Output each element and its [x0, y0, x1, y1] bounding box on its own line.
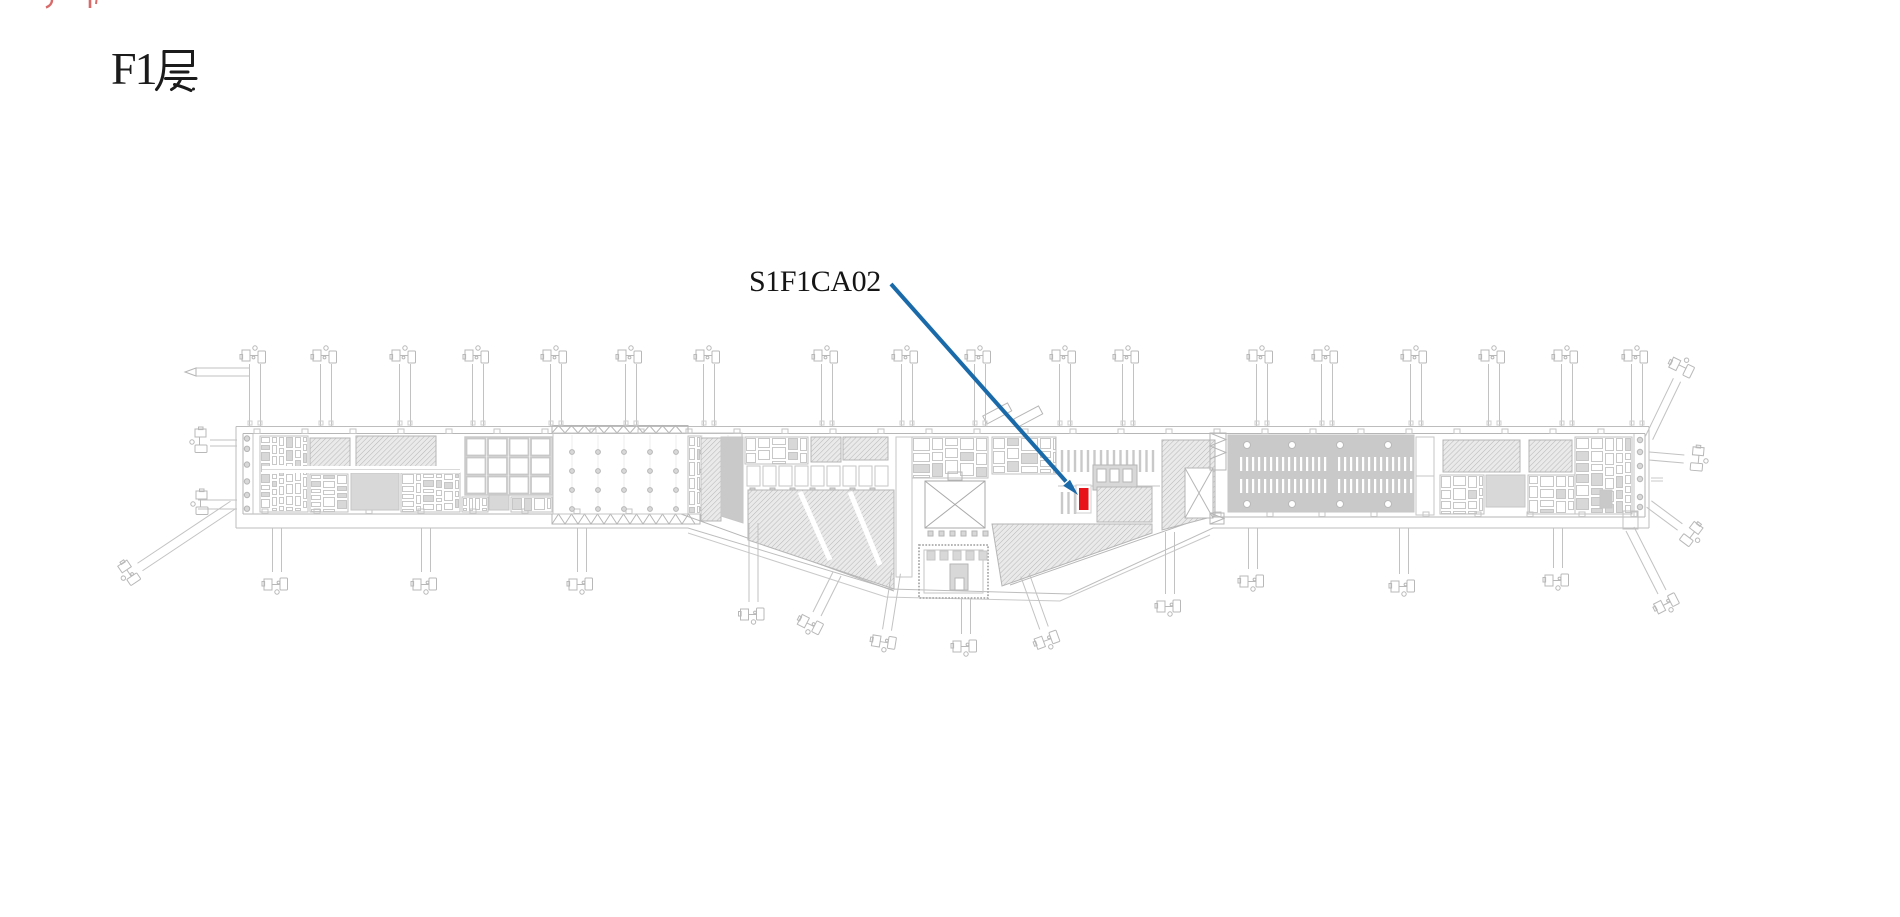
- svg-text:F1: F1: [111, 43, 156, 94]
- svg-text:S1F1CA02: S1F1CA02: [749, 265, 881, 298]
